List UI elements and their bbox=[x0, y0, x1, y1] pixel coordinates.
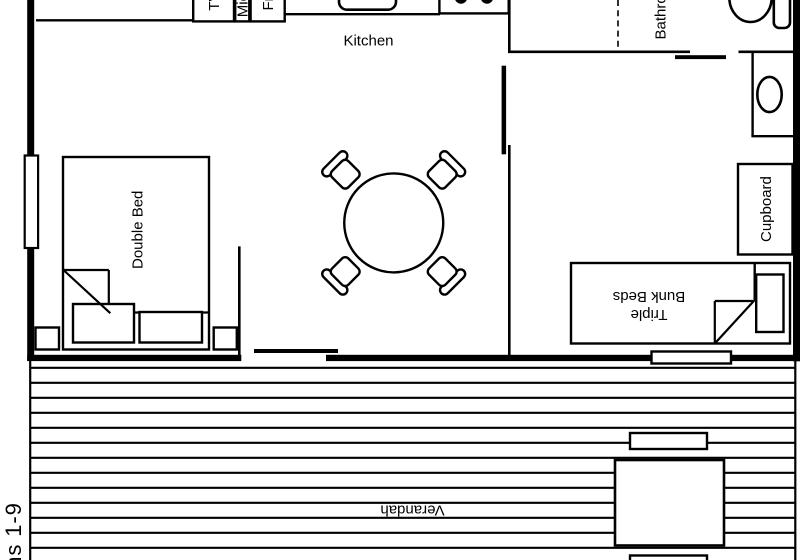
svg-text:Bathroom: Bathroom bbox=[653, 0, 670, 40]
svg-text:Cabins 1-9: Cabins 1-9 bbox=[1, 502, 26, 560]
svg-text:Fridge: Fridge bbox=[260, 0, 277, 11]
svg-text:Cupboard: Cupboard bbox=[758, 176, 775, 242]
svg-text:Microwave: Microwave bbox=[235, 0, 252, 17]
svg-text:Triple: Triple bbox=[631, 306, 668, 323]
svg-text:TV: TV bbox=[206, 0, 223, 11]
svg-text:Verandah: Verandah bbox=[380, 502, 444, 519]
svg-text:Double Bed: Double Bed bbox=[130, 191, 147, 269]
svg-text:Bunk Beds: Bunk Beds bbox=[613, 288, 686, 305]
svg-text:Kitchen: Kitchen bbox=[343, 32, 393, 49]
